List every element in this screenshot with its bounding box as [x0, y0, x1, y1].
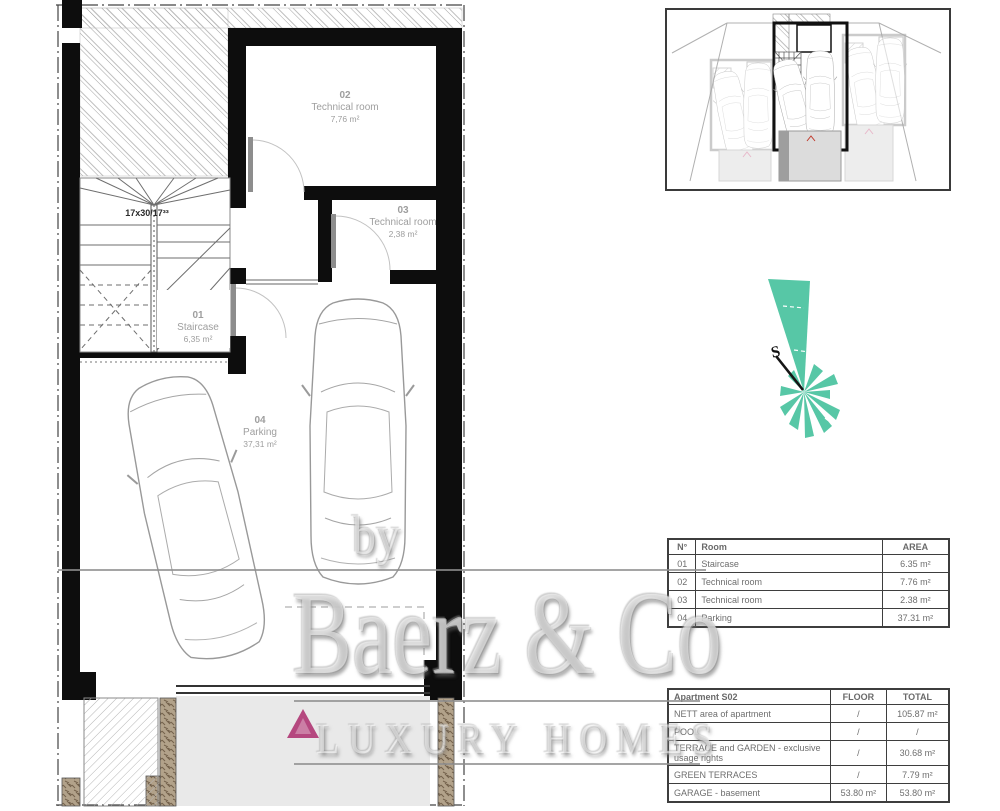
- svg-text:Parking: Parking: [243, 427, 277, 438]
- room-area: 2.38 m²: [882, 591, 949, 609]
- exterior-stair-hatch: [84, 698, 158, 806]
- table-row: 03 Technical room 2.38 m²: [668, 591, 949, 609]
- room-area: 6.35 m²: [882, 555, 949, 573]
- basement-floor-plan: 17x30/17³³ 02 Technical room 7,76 m² 0: [0, 0, 520, 811]
- summary-header-row: Apartment S02 FLOOR TOTAL: [668, 689, 949, 705]
- svg-text:Technical room: Technical room: [311, 102, 378, 113]
- summary-floor: /: [831, 705, 887, 723]
- summary-label: NETT area of apartment: [668, 705, 831, 723]
- room-number: 04: [668, 609, 696, 628]
- table-row: 02 Technical room 7.76 m²: [668, 573, 949, 591]
- site-key-plan: [665, 8, 951, 191]
- table-row: GREEN TERRACES / 7.79 m²: [668, 766, 949, 784]
- svg-text:04: 04: [254, 415, 266, 426]
- room-area: 37.31 m²: [882, 609, 949, 628]
- col-header-floor: FLOOR: [831, 689, 887, 705]
- table-row: TERRACE and GARDEN - exclusive usage rig…: [668, 741, 949, 766]
- room-number: 01: [668, 555, 696, 573]
- driveway: [176, 696, 430, 806]
- room-name: Technical room: [696, 573, 882, 591]
- door-room02: [248, 137, 304, 192]
- apartment-summary-table: Apartment S02 FLOOR TOTAL NETT area of a…: [667, 688, 950, 803]
- stone-wall-right: [438, 698, 454, 806]
- room-name: Technical room: [696, 591, 882, 609]
- summary-floor: 53.80 m²: [831, 784, 887, 803]
- summary-floor: /: [831, 766, 887, 784]
- parked-car-right: [302, 299, 414, 584]
- svg-text:37,31 m²: 37,31 m²: [243, 439, 277, 449]
- table-row: NETT area of apartment / 105.87 m²: [668, 705, 949, 723]
- room-label-03: 03 Technical room 2,38 m²: [369, 205, 436, 239]
- summary-label: POOL: [668, 723, 831, 741]
- stone-block-left-edge: [62, 778, 80, 806]
- svg-text:02: 02: [339, 90, 351, 101]
- room-area: 7.76 m²: [882, 573, 949, 591]
- current-unit: [767, 14, 847, 181]
- south-label: S: [769, 343, 782, 362]
- room-number: 02: [668, 573, 696, 591]
- neighbour-unit-left: [708, 60, 775, 181]
- table-row: 01 Staircase 6.35 m²: [668, 555, 949, 573]
- parking-spot-outline: [285, 607, 424, 682]
- room-label-04: 04 Parking 37,31 m²: [243, 415, 277, 449]
- site-key-plan-drawing: [667, 10, 945, 185]
- summary-label: GARAGE - basement: [668, 784, 831, 803]
- svg-text:01: 01: [192, 310, 204, 321]
- svg-text:03: 03: [397, 205, 409, 216]
- wind-rose: S: [738, 266, 843, 451]
- summary-floor: /: [831, 741, 887, 766]
- garage-door: [176, 686, 430, 693]
- summary-total: 7.79 m²: [886, 766, 949, 784]
- summary-floor: /: [831, 723, 887, 741]
- col-header-number: N°: [668, 539, 696, 555]
- table-row: POOL / /: [668, 723, 949, 741]
- parked-car-left: [108, 366, 281, 669]
- summary-total: /: [886, 723, 949, 741]
- floorplan-sheet: { "plan": { "stair_note": "17x30/17³³", …: [0, 0, 1000, 811]
- summary-total: 105.87 m²: [886, 705, 949, 723]
- neighbour-unit-right: [841, 35, 907, 181]
- door-staircase: [231, 284, 286, 338]
- apartment-title: Apartment S02: [668, 689, 831, 705]
- svg-text:7,76 m²: 7,76 m²: [331, 114, 360, 124]
- col-header-room: Room: [696, 539, 882, 555]
- room-table-header-row: N° Room AREA: [668, 539, 949, 555]
- room-number: 03: [668, 591, 696, 609]
- stone-wall-left: [160, 698, 176, 806]
- table-row: 04 Parking 37.31 m²: [668, 609, 949, 628]
- room-label-02: 02 Technical room 7,76 m²: [311, 90, 378, 124]
- summary-total: 53.80 m²: [886, 784, 949, 803]
- svg-text:Technical room: Technical room: [369, 217, 436, 228]
- summary-total: 30.68 m²: [886, 741, 949, 766]
- summary-label: TERRACE and GARDEN - exclusive usage rig…: [668, 741, 831, 766]
- svg-text:Staircase: Staircase: [177, 322, 219, 333]
- svg-text:6,35 m²: 6,35 m²: [184, 334, 213, 344]
- svg-text:2,38 m²: 2,38 m²: [389, 229, 418, 239]
- col-header-total: TOTAL: [886, 689, 949, 705]
- table-row: GARAGE - basement 53.80 m² 53.80 m²: [668, 784, 949, 803]
- corridor-divider: [246, 280, 318, 284]
- summary-label: GREEN TERRACES: [668, 766, 831, 784]
- room-name: Staircase: [696, 555, 882, 573]
- col-header-area: AREA: [882, 539, 949, 555]
- room-area-table: N° Room AREA 01 Staircase 6.35 m² 02 Tec…: [667, 538, 950, 628]
- room-name: Parking: [696, 609, 882, 628]
- stair-dimension-note: 17x30/17³³: [125, 208, 169, 218]
